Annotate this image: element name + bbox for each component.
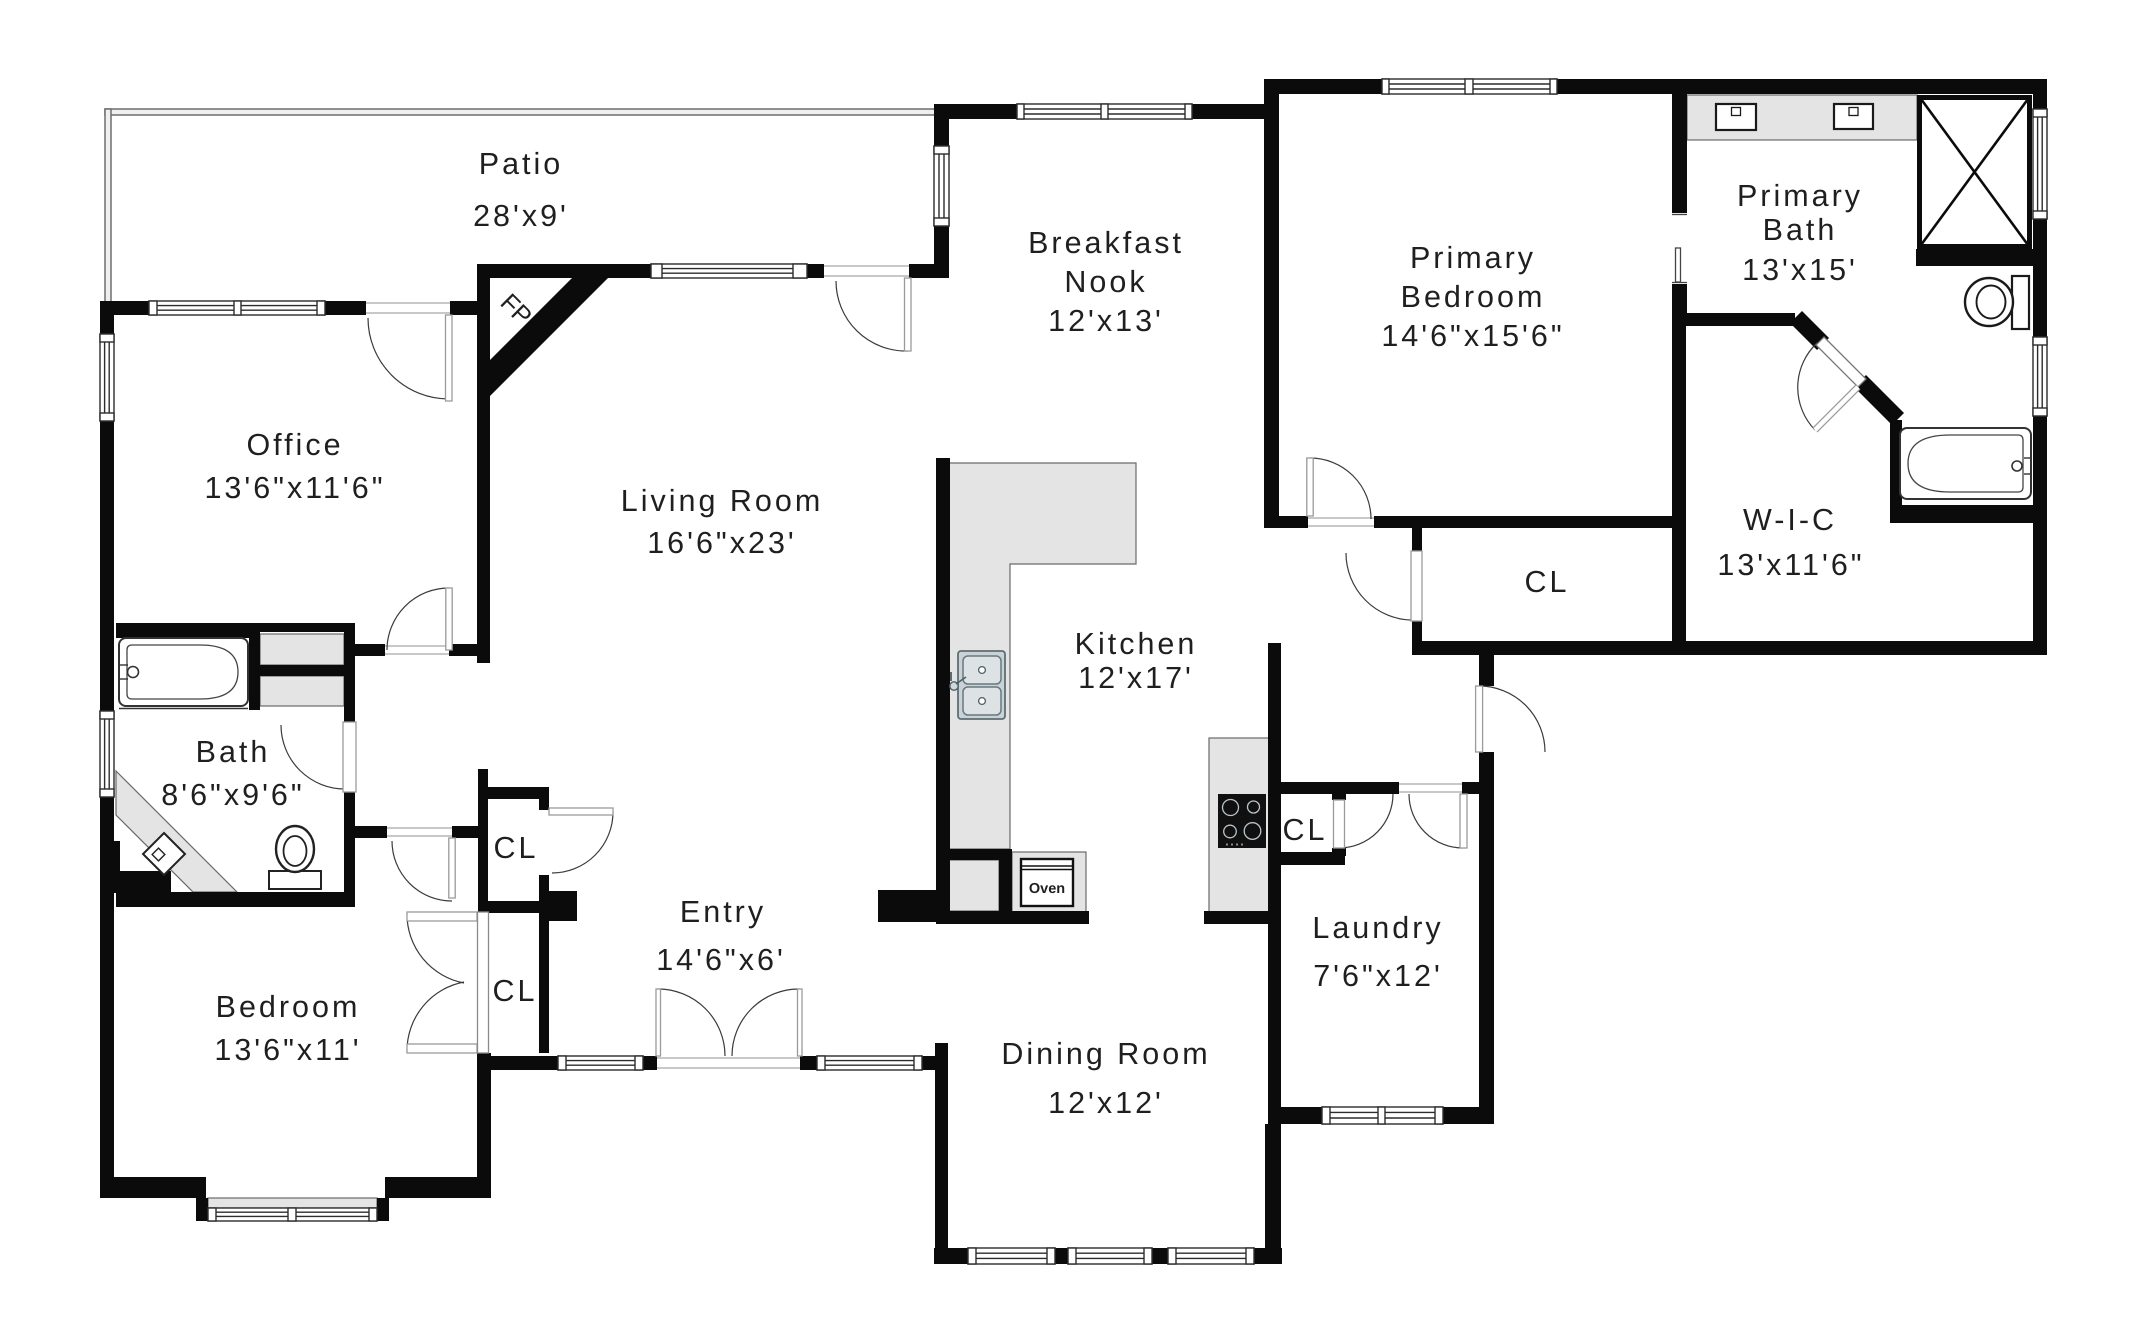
svg-text:W-I-C: W-I-C — [1743, 503, 1837, 537]
svg-text:Primary: Primary — [1410, 241, 1536, 275]
svg-text:Kitchen: Kitchen — [1075, 627, 1198, 661]
svg-text:Breakfast: Breakfast — [1028, 226, 1184, 260]
svg-text:13'x11'6": 13'x11'6" — [1717, 548, 1864, 582]
svg-text:Laundry: Laundry — [1312, 911, 1443, 945]
svg-text:28'x9': 28'x9' — [473, 199, 569, 233]
svg-text:12'x17': 12'x17' — [1078, 661, 1194, 695]
svg-text:13'6"x11': 13'6"x11' — [214, 1033, 361, 1067]
svg-text:Patio: Patio — [479, 147, 564, 181]
svg-text:CL: CL — [493, 974, 538, 1008]
svg-text:CL: CL — [1283, 813, 1328, 847]
svg-text:Dining Room: Dining Room — [1001, 1037, 1210, 1071]
svg-text:Primary: Primary — [1737, 179, 1863, 213]
svg-text:13'6"x11'6": 13'6"x11'6" — [204, 471, 385, 505]
svg-text:14'6"x15'6": 14'6"x15'6" — [1381, 319, 1564, 353]
svg-text:Office: Office — [246, 428, 343, 462]
svg-text:CL: CL — [1525, 565, 1570, 599]
svg-text:CL: CL — [494, 831, 539, 865]
svg-text:14'6"x6': 14'6"x6' — [656, 943, 786, 977]
svg-text:Bath: Bath — [196, 735, 271, 769]
svg-text:12'x12': 12'x12' — [1048, 1086, 1164, 1120]
svg-text:Nook: Nook — [1064, 265, 1147, 299]
svg-text:7'6"x12': 7'6"x12' — [1313, 959, 1443, 993]
svg-text:8'6"x9'6": 8'6"x9'6" — [161, 778, 304, 812]
svg-text:Oven: Oven — [1029, 881, 1065, 897]
svg-text:12'x13': 12'x13' — [1048, 304, 1164, 338]
svg-text:Bedroom: Bedroom — [1401, 280, 1546, 314]
svg-text:13'x15': 13'x15' — [1742, 253, 1858, 287]
svg-text:Entry: Entry — [680, 895, 766, 929]
svg-text:Bedroom: Bedroom — [216, 990, 361, 1024]
svg-text:16'6"x23': 16'6"x23' — [647, 526, 797, 560]
svg-text:Living Room: Living Room — [621, 484, 824, 518]
svg-text:Bath: Bath — [1763, 213, 1838, 247]
